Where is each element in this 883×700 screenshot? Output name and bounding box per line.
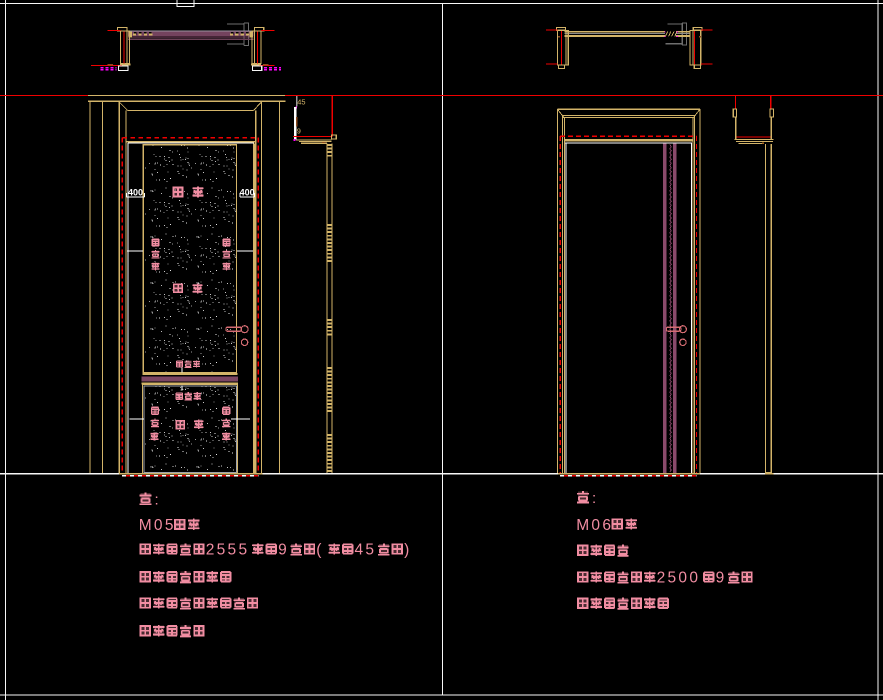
svg-text:2500: 2500 bbox=[657, 569, 701, 586]
svg-text:2555: 2555 bbox=[206, 541, 250, 558]
svg-text:45: 45 bbox=[297, 97, 305, 106]
svg-text:(: ( bbox=[316, 541, 323, 558]
svg-text:): ) bbox=[404, 541, 411, 558]
svg-text:9: 9 bbox=[297, 127, 301, 136]
svg-text::: : bbox=[155, 491, 159, 508]
svg-text:400: 400 bbox=[128, 188, 143, 198]
svg-text:M06: M06 bbox=[576, 517, 613, 534]
svg-text:9: 9 bbox=[716, 569, 727, 586]
svg-text:400: 400 bbox=[240, 188, 255, 198]
svg-text::: : bbox=[592, 490, 596, 507]
svg-text:9: 9 bbox=[278, 541, 289, 558]
svg-text:M05: M05 bbox=[139, 517, 176, 534]
svg-text:45: 45 bbox=[355, 541, 377, 558]
